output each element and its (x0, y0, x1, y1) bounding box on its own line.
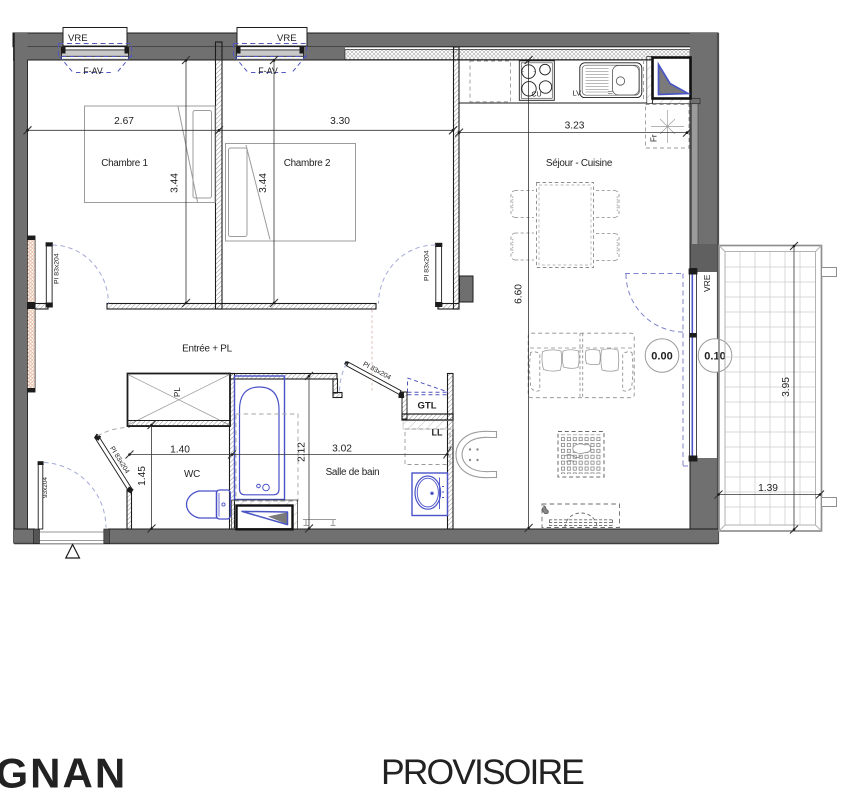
svg-text:PL: PL (173, 387, 182, 397)
svg-text:CU: CU (531, 92, 541, 99)
svg-text:F-AV: F-AV (83, 66, 103, 76)
svg-text:3.44: 3.44 (258, 173, 269, 193)
svg-text:Entrée + PL: Entrée + PL (182, 344, 232, 355)
svg-text:1.45: 1.45 (137, 466, 148, 486)
svg-text:LL: LL (432, 428, 443, 438)
svg-text:PROVISOIRE: PROVISOIRE (381, 752, 584, 792)
svg-text:Salle de bain: Salle de bain (326, 467, 380, 478)
svg-text:6.60: 6.60 (514, 284, 525, 304)
svg-text:0.10: 0.10 (704, 351, 725, 363)
svg-text:VRE: VRE (277, 33, 297, 44)
svg-text:3.95: 3.95 (781, 377, 792, 397)
svg-text:WC: WC (184, 469, 200, 480)
svg-text:2.12: 2.12 (297, 442, 308, 462)
svg-text:1.39: 1.39 (758, 483, 778, 494)
svg-text:PI 83x204: PI 83x204 (54, 253, 61, 284)
svg-text:3.44: 3.44 (170, 173, 181, 193)
svg-text:Séjour - Cuisine: Séjour - Cuisine (546, 158, 613, 169)
svg-text:VRE: VRE (68, 33, 88, 44)
svg-text:0.00: 0.00 (651, 351, 672, 363)
svg-text:Chambre 1: Chambre 1 (101, 158, 148, 169)
svg-text:1.40: 1.40 (170, 445, 190, 456)
svg-text:3.23: 3.23 (565, 121, 585, 132)
svg-text:VRE: VRE (702, 274, 712, 292)
svg-text:Fr: Fr (650, 134, 659, 142)
svg-text:F-AV: F-AV (258, 66, 278, 76)
svg-text:GTL: GTL (418, 401, 437, 412)
svg-text:Chambre 2: Chambre 2 (284, 158, 331, 169)
svg-text:LV: LV (573, 89, 582, 98)
svg-text:3.02: 3.02 (332, 444, 352, 455)
svg-text:93x204: 93x204 (42, 477, 49, 498)
svg-text:PI 83x204: PI 83x204 (424, 250, 431, 281)
svg-text:2.67: 2.67 (114, 116, 134, 127)
svg-text:3.30: 3.30 (330, 116, 350, 127)
svg-text:GNAN: GNAN (0, 750, 127, 797)
